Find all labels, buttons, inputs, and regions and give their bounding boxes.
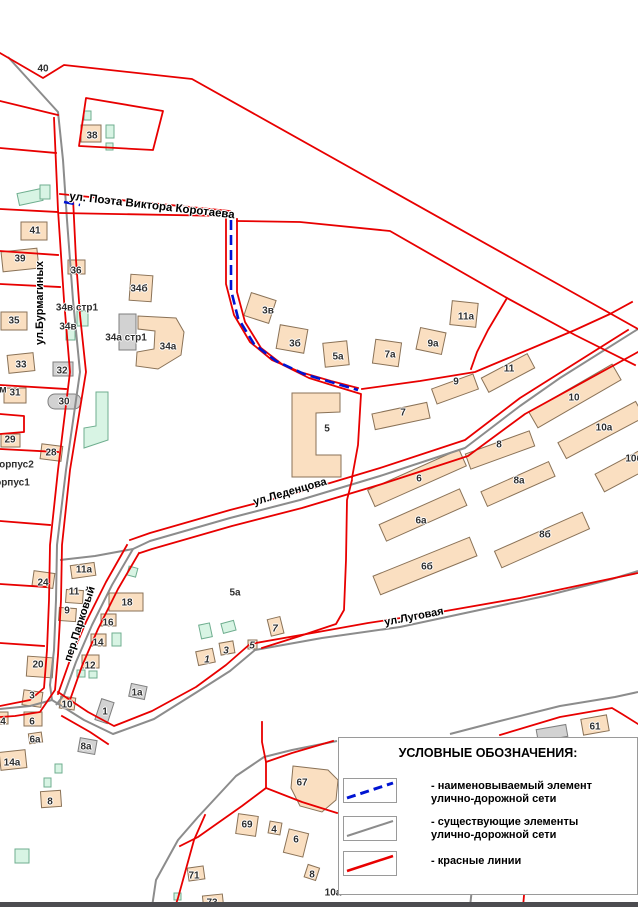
red-line bbox=[0, 414, 24, 434]
building-footprint bbox=[1, 434, 20, 447]
building-footprint bbox=[0, 712, 8, 724]
building-footprint bbox=[7, 353, 35, 374]
building-footprint bbox=[81, 125, 101, 142]
legend-swatch-existing-elements bbox=[343, 816, 397, 841]
building-footprint bbox=[581, 715, 609, 735]
building-footprint bbox=[450, 301, 478, 328]
road-line bbox=[450, 692, 638, 734]
green-area bbox=[89, 671, 97, 678]
building-footprint bbox=[66, 589, 84, 603]
footer-bar bbox=[0, 902, 638, 907]
red-line bbox=[0, 284, 60, 287]
building-footprint bbox=[283, 829, 308, 857]
green-area bbox=[77, 311, 88, 326]
green-area bbox=[44, 778, 51, 787]
legend-item-red-lines: - красные линии bbox=[431, 855, 521, 868]
green-area bbox=[106, 143, 113, 150]
legend-panel: УСЛОВНЫЕ ОБОЗНАЧЕНИЯ: - наименовываемый … bbox=[338, 737, 638, 895]
building-footprint bbox=[416, 328, 446, 355]
green-area bbox=[84, 392, 108, 448]
red-line bbox=[0, 521, 50, 525]
green-area bbox=[17, 189, 43, 206]
building-footprint bbox=[21, 222, 47, 240]
building-footprint bbox=[28, 732, 42, 744]
building-footprint bbox=[595, 444, 638, 492]
green-area bbox=[199, 623, 213, 639]
building-footprint bbox=[1, 312, 27, 330]
gray-building-footprint bbox=[119, 314, 136, 350]
legend-swatch-red-lines bbox=[343, 851, 397, 876]
gray-building-footprint bbox=[129, 683, 147, 699]
red-line bbox=[0, 209, 58, 212]
building-footprint bbox=[292, 393, 341, 477]
building-footprint bbox=[0, 750, 27, 771]
building-footprint bbox=[323, 341, 349, 367]
building-footprint bbox=[187, 866, 205, 881]
building-footprint bbox=[481, 354, 534, 393]
red-line bbox=[60, 194, 230, 211]
named-street-element bbox=[64, 202, 358, 390]
red-line bbox=[0, 53, 638, 329]
building-footprint bbox=[267, 617, 284, 637]
building-footprint bbox=[219, 641, 235, 655]
green-area bbox=[40, 185, 50, 199]
building-footprint bbox=[244, 293, 276, 324]
building-footprint bbox=[372, 339, 401, 366]
legend-title: УСЛОВНЫЕ ОБОЗНАЧЕНИЯ: bbox=[339, 746, 637, 760]
building-footprint bbox=[196, 648, 216, 665]
building-footprint bbox=[136, 316, 184, 369]
green-area bbox=[221, 620, 236, 633]
green-area bbox=[15, 849, 29, 863]
building-footprint bbox=[70, 562, 96, 578]
green-area bbox=[84, 111, 91, 120]
map-page: 403841393634б34в стр134в34а стр134а3533м… bbox=[0, 0, 638, 907]
red-line bbox=[0, 148, 56, 153]
green-area bbox=[55, 764, 62, 773]
red-line bbox=[0, 643, 44, 646]
legend-swatch-named-element bbox=[343, 778, 397, 803]
building-footprint bbox=[372, 402, 430, 429]
legend-item-existing-elements: - существующие элементы улично-дорожной … bbox=[431, 816, 578, 841]
legend-item-named-element: - наименовываемый элемент улично-дорожно… bbox=[431, 780, 592, 805]
building-footprint bbox=[26, 656, 53, 678]
building-footprint bbox=[268, 821, 282, 835]
building-footprint bbox=[40, 790, 61, 807]
green-areas bbox=[15, 111, 236, 900]
red-line bbox=[60, 213, 226, 216]
building-footprint bbox=[494, 512, 589, 567]
legend-gray-line bbox=[347, 821, 393, 836]
building-footprint bbox=[558, 401, 638, 458]
legend-red-line bbox=[347, 856, 393, 871]
red-line bbox=[58, 573, 638, 726]
red-line bbox=[262, 722, 333, 762]
green-area bbox=[106, 125, 114, 138]
building-footprint bbox=[276, 325, 308, 353]
building-footprint bbox=[129, 274, 153, 301]
green-area bbox=[112, 633, 121, 646]
red-line bbox=[500, 708, 638, 735]
gray-building-footprint bbox=[78, 738, 97, 755]
building-footprint bbox=[304, 864, 319, 880]
building-footprint bbox=[236, 814, 259, 837]
building-footprint bbox=[481, 462, 555, 507]
legend-blue-dashed-line bbox=[347, 783, 393, 798]
red-line bbox=[175, 815, 205, 907]
building-footprint bbox=[373, 537, 477, 595]
building-footprint bbox=[4, 388, 26, 403]
